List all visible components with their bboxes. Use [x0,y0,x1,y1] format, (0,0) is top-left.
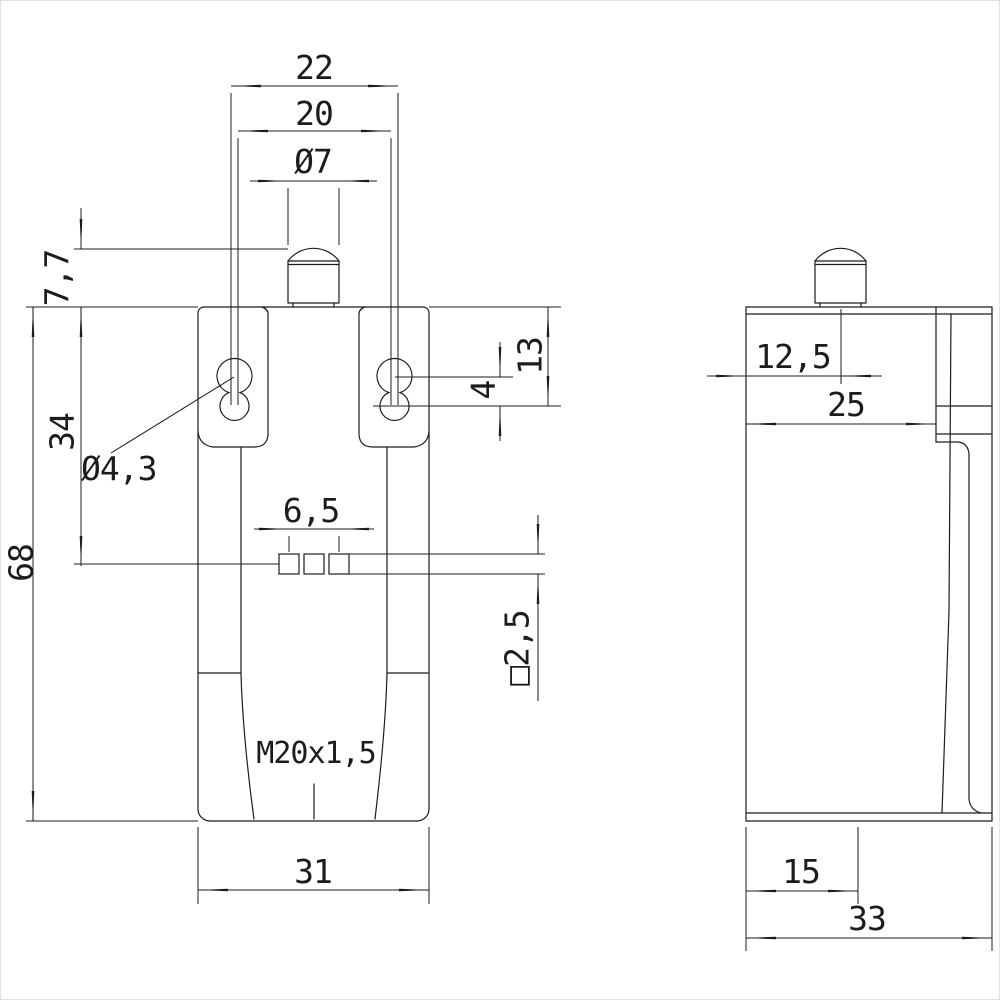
dim-contact-square: □2,5 [498,610,537,685]
side-view [746,248,992,821]
front-ear-underside-left [198,307,268,447]
front-taper-right [375,673,387,819]
plunger-side [815,248,866,307]
keyhole-slot-right [377,359,412,421]
dim-hole-depth: 13 [511,337,550,375]
dim-overall-height: 68 [2,544,41,582]
dim-hole-spacing: 20 [295,94,333,133]
plunger-front [288,248,339,307]
side-dimension-lines [707,376,992,938]
dim-upper-depth: 25 [827,385,865,424]
dim-bottom-step-offset: 15 [782,852,820,891]
dim-plunger-diameter: Ø7 [294,142,332,181]
side-body-outline [746,307,992,821]
side-recess-edge [936,442,981,813]
front-taper-left [241,673,254,819]
dim-hole-offset: 4 [464,380,503,399]
dim-body-depth: 33 [848,899,886,938]
dim-plunger-axis-offset: 12,5 [755,337,830,376]
dim-body-width: 31 [294,852,332,891]
drawing-canvas: 22 20 Ø7 7,7 34 68 Ø4,3 13 4 6,5 □2,5 M2… [0,0,1000,1000]
terminal-squares [279,554,349,574]
hole-dia-leader [111,377,234,453]
keyhole-slot-left [217,359,252,421]
dim-plunger-height: 7,7 [38,250,77,307]
dim-top-width: 22 [295,48,333,87]
dim-contact-spacing: 6,5 [283,491,340,530]
dim-upper-section-height: 34 [43,413,82,451]
thread-spec-label: M20x1,5 [256,736,375,771]
limit-switch-drawing: 22 20 Ø7 7,7 34 68 Ø4,3 13 4 6,5 □2,5 M2… [1,1,1000,1001]
side-cover-seam [942,314,951,813]
dim-mounting-hole-diameter: Ø4,3 [81,449,156,488]
